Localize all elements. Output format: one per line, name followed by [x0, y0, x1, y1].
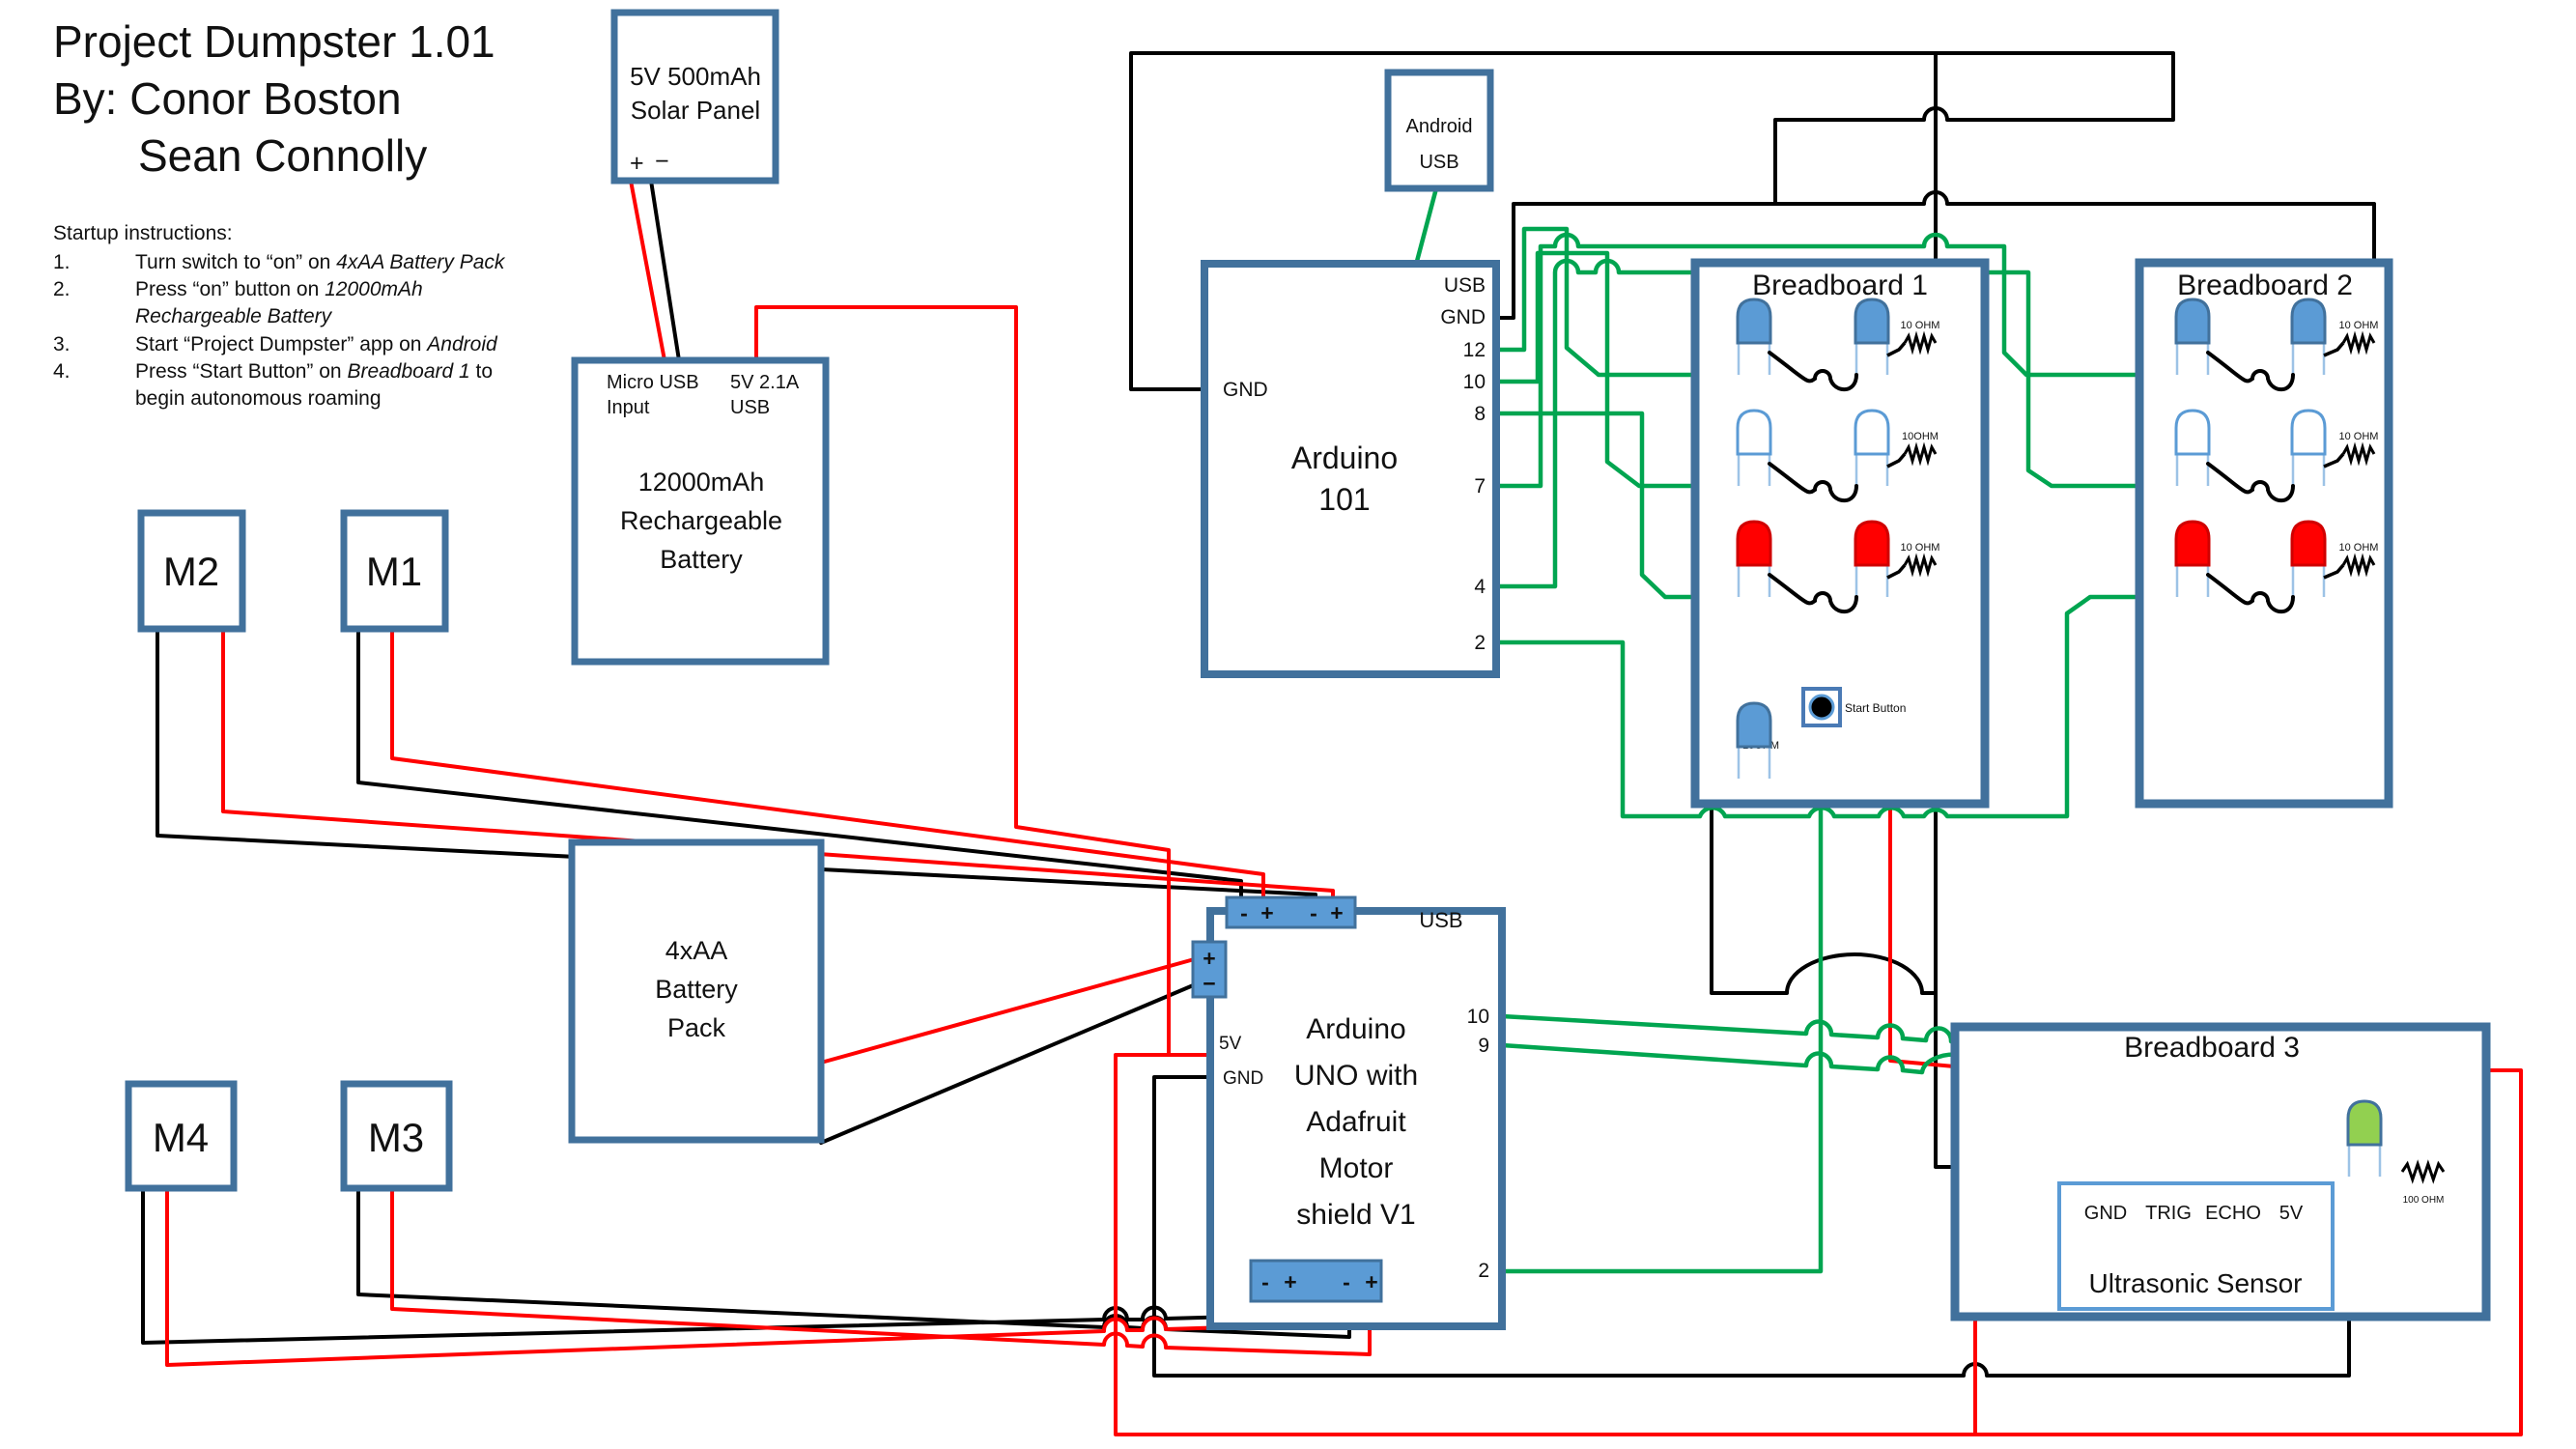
- resistor-label: 10 OHM: [1901, 320, 1940, 331]
- motor-m4-label: M4: [153, 1115, 209, 1160]
- solar-plus: +: [630, 150, 644, 177]
- terminal-sign: -: [1310, 900, 1317, 925]
- power-terminal-minus: −: [1203, 971, 1215, 996]
- pin-label-4: 4: [1474, 576, 1486, 598]
- sensor-name: Ultrasonic Sensor: [2089, 1268, 2303, 1298]
- pin-label-2: 2: [1478, 1260, 1489, 1282]
- battery-name1: 12000mAh: [638, 468, 765, 497]
- pin-label-9: 9: [1478, 1035, 1489, 1057]
- pin-label-10: 10: [1467, 1006, 1489, 1028]
- outline-led: [1738, 411, 1770, 454]
- breadboard2-title: Breadboard 2: [2177, 270, 2353, 301]
- green-led: [2348, 1101, 2381, 1145]
- outline-led: [2292, 411, 2325, 454]
- sensor-pin-GND: GND: [2084, 1203, 2127, 1224]
- blue-led: [1738, 299, 1770, 343]
- outline-led: [1855, 411, 1888, 454]
- terminal-sign: +: [1260, 900, 1273, 925]
- solar-line1: 5V 500mAh: [630, 62, 761, 91]
- uno-name-line: shield V1: [1296, 1199, 1415, 1231]
- android-line1: Android: [1406, 116, 1473, 137]
- wire-android-usb: [1415, 188, 1436, 269]
- bb3-resistor-label: 100 OHM: [2403, 1195, 2445, 1206]
- sensor-pin-ECHO: ECHO: [2205, 1203, 2261, 1224]
- terminal-sign: +: [1365, 1269, 1377, 1294]
- wire-m4-black: [143, 1188, 1268, 1343]
- solar-minus: −: [655, 148, 669, 175]
- blue-led: [2176, 299, 2209, 343]
- motor-m2-label: M2: [163, 549, 219, 594]
- arduino101-name2: 101: [1318, 482, 1370, 517]
- blue-led: [1855, 299, 1888, 343]
- red-led: [1738, 522, 1770, 565]
- red-led: [2176, 522, 2209, 565]
- pin-label-GND: GND: [1440, 306, 1486, 328]
- arduino101-name1: Arduino: [1291, 440, 1398, 475]
- uno-name-line: Arduino: [1306, 1013, 1405, 1045]
- terminal-sign: +: [1330, 900, 1343, 925]
- motor-m3-label: M3: [368, 1115, 424, 1160]
- pin-label-7: 7: [1474, 475, 1486, 497]
- pin-label-8: 8: [1474, 403, 1486, 425]
- resistor-label: 10 OHM: [2339, 542, 2379, 554]
- solar-line2: Solar Panel: [631, 96, 760, 125]
- sensor-pin-TRIG: TRIG: [2145, 1203, 2192, 1224]
- pack-line3: Pack: [667, 1013, 726, 1042]
- battery-name3: Battery: [660, 545, 743, 574]
- wire-pack-plus: [821, 958, 1198, 1063]
- resistor-label: 10 OHM: [2339, 320, 2379, 331]
- uno-name-line: UNO with: [1294, 1060, 1418, 1092]
- power-terminal-plus: +: [1203, 946, 1215, 971]
- resistor-label: 10OHM: [1902, 431, 1939, 442]
- red-led: [2292, 522, 2325, 565]
- outline-led: [2176, 411, 2209, 454]
- wire-solar-plus: [631, 181, 665, 360]
- blue-led: [1738, 703, 1770, 747]
- battery-out1: 5V 2.1A: [730, 372, 800, 393]
- terminal-sign: +: [1284, 1269, 1296, 1294]
- pin-label-USB: USB: [1444, 274, 1486, 297]
- wire-solar-minus: [651, 181, 679, 360]
- resistor-label: 10 OHM: [1901, 542, 1940, 554]
- terminal-sign: -: [1261, 1269, 1269, 1294]
- start-button-label: Start Button: [1845, 701, 1906, 715]
- battery-in1: Micro USB: [607, 372, 699, 393]
- pin-label-12: 12: [1463, 339, 1486, 361]
- red-led: [1855, 522, 1888, 565]
- blue-led: [2292, 299, 2325, 343]
- uno-terminal-bottom: [1251, 1261, 1381, 1301]
- wire-m1-red: [392, 629, 1263, 901]
- android-line2: USB: [1419, 152, 1458, 173]
- terminal-sign: -: [1343, 1269, 1350, 1294]
- start-button-cap: [1810, 696, 1833, 719]
- pin-label-10: 10: [1463, 371, 1486, 393]
- pack-line2: Battery: [655, 975, 738, 1004]
- wiring-diagram: 5V 500mAh Solar Panel + − Micro USB Inpu…: [0, 0, 2576, 1449]
- uno-usb-label: USB: [1419, 908, 1462, 932]
- breadboard1-title: Breadboard 1: [1752, 270, 1928, 301]
- uno-gnd-label: GND: [1223, 1068, 1263, 1089]
- uno-name-line: Adafruit: [1306, 1106, 1406, 1138]
- battery-name2: Rechargeable: [620, 506, 782, 535]
- uno-name-line: Motor: [1319, 1152, 1394, 1184]
- battery-out2: USB: [730, 397, 770, 418]
- battery-in2: Input: [607, 397, 650, 418]
- sensor-pin-5V: 5V: [2279, 1203, 2304, 1224]
- motor-m1-label: M1: [366, 549, 422, 594]
- arduino101-gnd-left: GND: [1223, 379, 1268, 401]
- resistor-label: 10 OHM: [2339, 431, 2379, 442]
- breadboard3-title: Breadboard 3: [2124, 1032, 2300, 1064]
- terminal-sign: -: [1240, 900, 1248, 925]
- uno-5v-label: 5V: [1219, 1034, 1242, 1054]
- pin-label-2: 2: [1474, 632, 1486, 654]
- wire-pack-minus: [821, 983, 1198, 1143]
- pack-line1: 4xAA: [665, 936, 728, 965]
